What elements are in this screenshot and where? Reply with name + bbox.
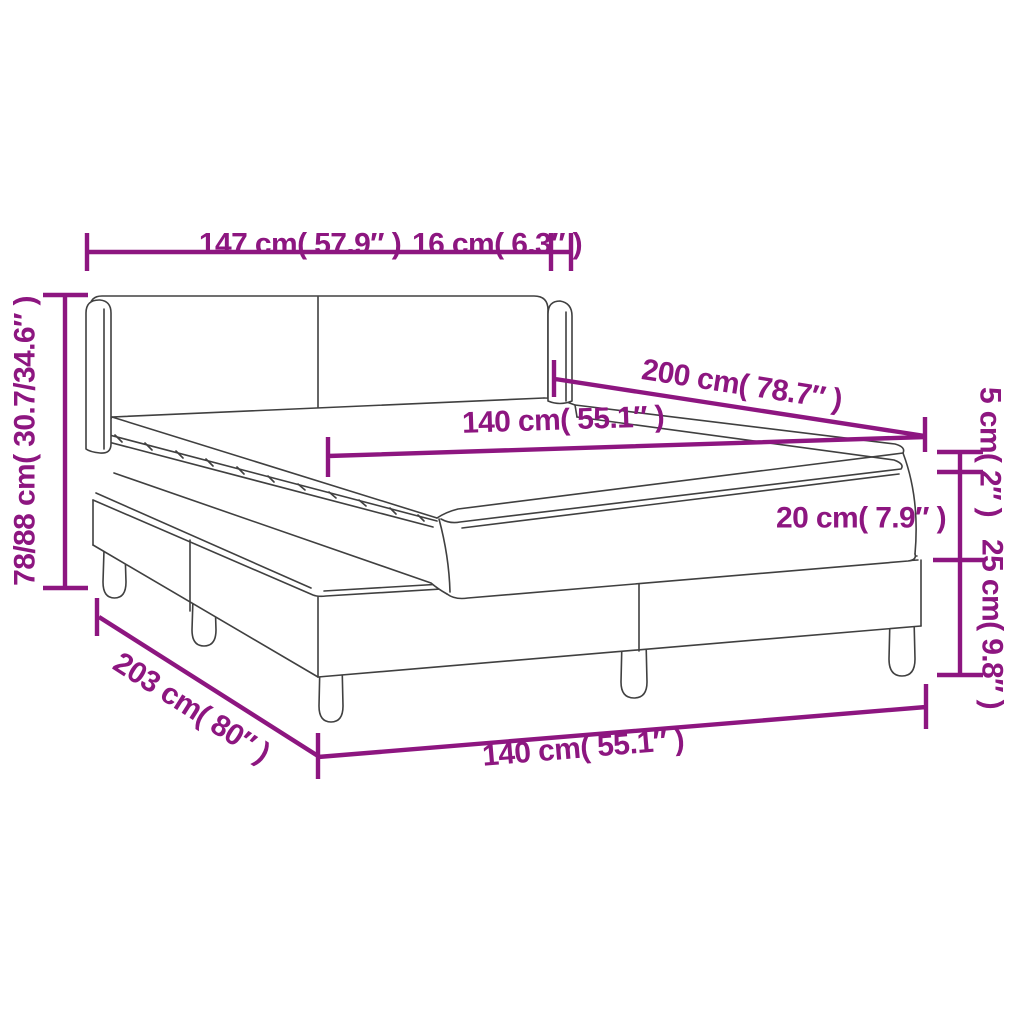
- diagram-canvas: 147 cm( 57.9″ ) 16 cm( 6.3″ ) 78/88 cm( …: [0, 0, 1024, 1024]
- dim-line-headboard-height: [43, 295, 88, 588]
- dim-label-topper-thickness: 5 cm( 2″ ): [974, 387, 1007, 517]
- dim-label-bed-width-bottom: 140 cm( 55.1″ ): [481, 723, 685, 772]
- headboard-left-wing: [86, 300, 111, 453]
- bed-dimension-diagram: 147 cm( 57.9″ ) 16 cm( 6.3″ ) 78/88 cm( …: [0, 0, 1024, 1024]
- dim-label-frame-length: 203 cm( 80″ ): [107, 646, 275, 770]
- dim-label-base-height: 25 cm( 9.8″ ): [976, 539, 1009, 709]
- dim-label-headboard-height: 78/88 cm( 30.7/34.6″ ): [9, 296, 42, 586]
- dim-label-mattress-thickness: 20 cm( 7.9″ ): [776, 502, 946, 535]
- dim-label-mattress-width-top: 140 cm( 55.1″ ): [461, 400, 664, 440]
- dim-label-headboard-width: 147 cm( 57.9″ ): [199, 228, 401, 261]
- dim-label-headboard-side-depth: 16 cm( 6.3″ ): [412, 228, 582, 261]
- headboard-right-wing: [548, 301, 572, 404]
